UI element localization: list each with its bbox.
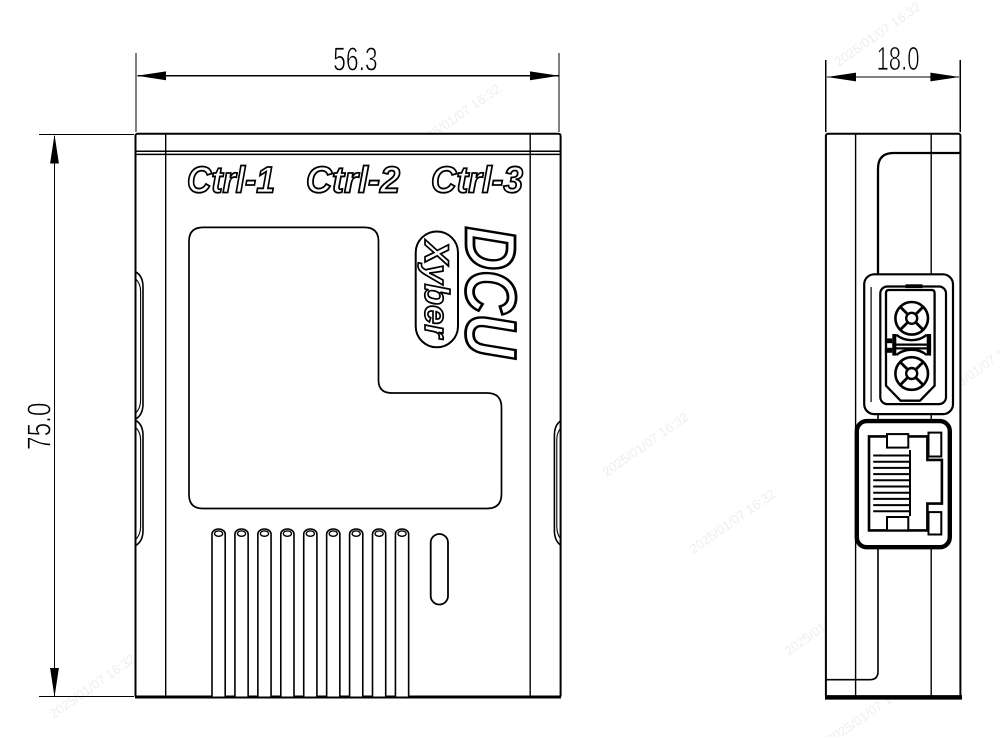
svg-text:Xyber: Xyber [417, 239, 455, 340]
svg-text:DCU: DCU [450, 227, 529, 359]
svg-text:Ctrl-3: Ctrl-3 [431, 160, 523, 201]
svg-text:75.0: 75.0 [21, 403, 58, 451]
svg-text:2025/01/07 16:32: 2025/01/07 16:32 [600, 409, 692, 479]
svg-text:Ctrl-2: Ctrl-2 [306, 160, 400, 201]
svg-text:18.0: 18.0 [877, 40, 920, 77]
svg-text:Ctrl-1: Ctrl-1 [187, 160, 275, 201]
svg-text:56.3: 56.3 [333, 40, 378, 77]
svg-text:2025/01/07 16:32: 2025/01/07 16:32 [687, 486, 779, 556]
svg-text:2025/01/07 16:32: 2025/01/07 16:32 [47, 651, 139, 721]
